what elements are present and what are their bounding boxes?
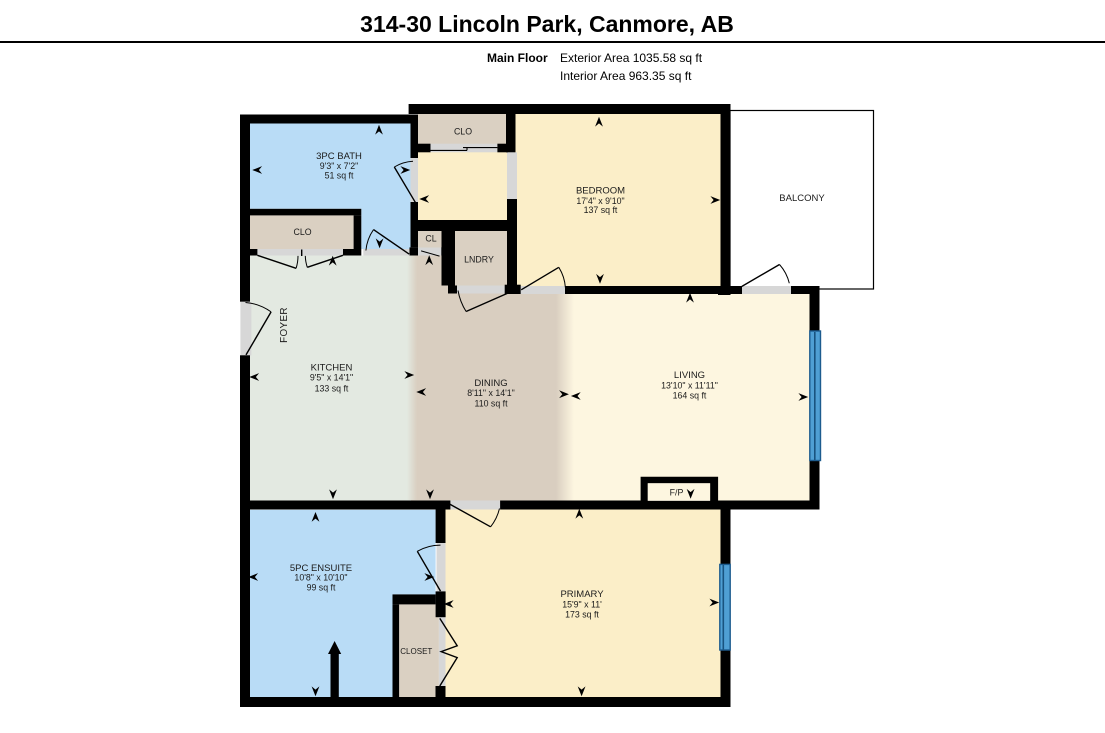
svg-text:PRIMARY: PRIMARY (560, 589, 604, 600)
svg-text:99 sq ft: 99 sq ft (307, 582, 336, 592)
svg-text:173 sq ft: 173 sq ft (565, 609, 599, 619)
svg-text:110 sq ft: 110 sq ft (474, 399, 508, 409)
svg-text:137 sq ft: 137 sq ft (584, 205, 618, 215)
svg-text:CLOSET: CLOSET (400, 647, 432, 656)
svg-text:15'9" x 11': 15'9" x 11' (562, 600, 602, 610)
svg-text:164 sq ft: 164 sq ft (673, 391, 707, 401)
svg-text:10'8" x 10'10": 10'8" x 10'10" (294, 573, 347, 583)
svg-text:8'11" x 14'1": 8'11" x 14'1" (467, 388, 515, 398)
svg-text:CL: CL (425, 234, 436, 244)
svg-text:9'5" x 14'1": 9'5" x 14'1" (310, 373, 353, 383)
svg-text:BEDROOM: BEDROOM (576, 186, 625, 197)
svg-text:CLO: CLO (294, 227, 312, 237)
svg-text:13'10" x 11'11": 13'10" x 11'11" (661, 380, 718, 390)
svg-text:51 sq ft: 51 sq ft (325, 171, 354, 181)
svg-text:CLO: CLO (454, 127, 472, 137)
svg-text:FOYER: FOYER (279, 307, 290, 343)
svg-text:F/P: F/P (670, 488, 684, 498)
svg-text:LNDRY: LNDRY (464, 255, 494, 265)
svg-text:BALCONY: BALCONY (779, 193, 825, 204)
svg-text:9'3" x 7'2": 9'3" x 7'2" (320, 161, 358, 171)
svg-text:133 sq ft: 133 sq ft (315, 383, 349, 393)
